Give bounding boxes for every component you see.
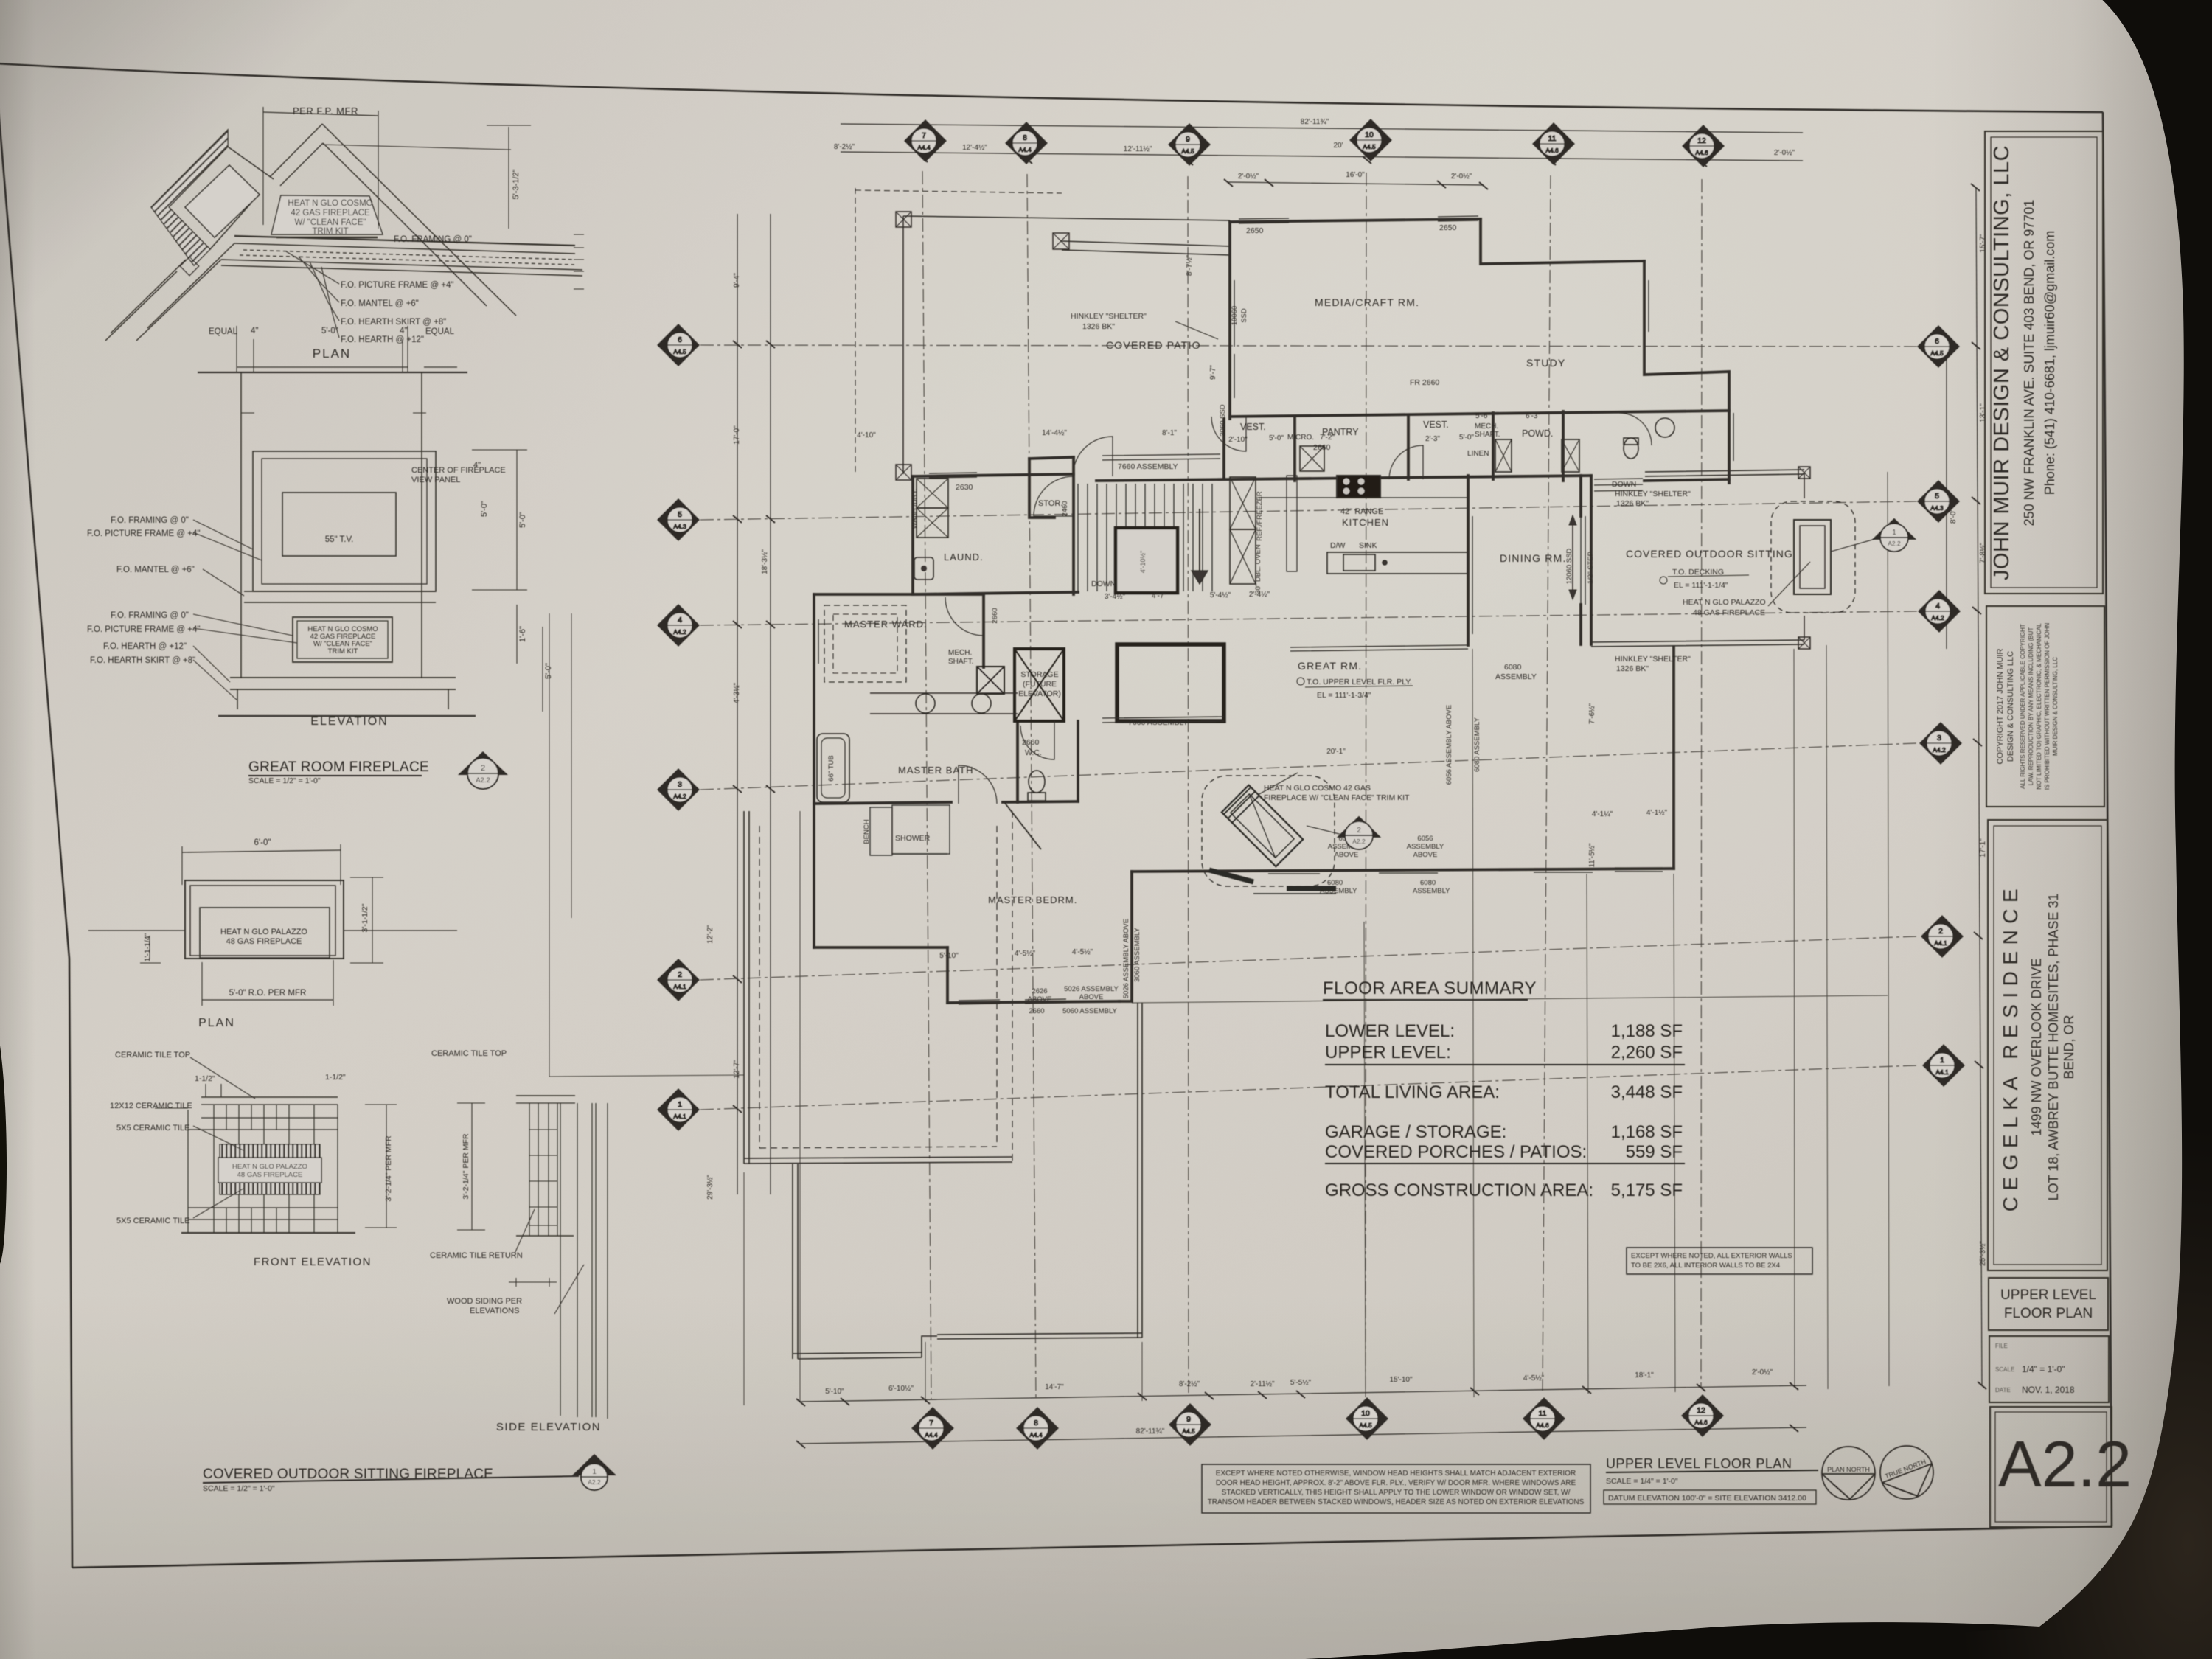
svg-text:48 GAS FIREPLACE: 48 GAS FIREPLACE	[1693, 608, 1765, 617]
svg-text:PLAN: PLAN	[198, 1017, 235, 1029]
svg-text:5'-0": 5'-0"	[480, 501, 489, 517]
svg-text:A4.6: A4.6	[1536, 1422, 1549, 1429]
svg-text:250 NW FRANKLIN AVE. SUITE 403: 250 NW FRANKLIN AVE. SUITE 403 BEND, OR …	[2022, 200, 2037, 526]
svg-text:A4.1: A4.1	[1935, 1068, 1949, 1076]
svg-text:HEAT N GLO COSMO 42 GAS: HEAT N GLO COSMO 42 GAS	[1264, 784, 1371, 793]
svg-text:HEAT N GLO PALAZZO: HEAT N GLO PALAZZO	[1683, 598, 1766, 607]
svg-text:2'-3": 2'-3"	[1425, 435, 1440, 443]
svg-text:A2.2: A2.2	[476, 776, 490, 785]
svg-text:REF./FREEZER: REF./FREEZER	[1256, 491, 1264, 541]
svg-text:13'-1": 13'-1"	[1979, 403, 1987, 422]
svg-text:1-1/2": 1-1/2"	[195, 1074, 215, 1083]
svg-text:6'-3": 6'-3"	[1526, 412, 1540, 420]
svg-text:EQUAL: EQUAL	[209, 327, 238, 336]
svg-text:3: 3	[678, 780, 682, 789]
svg-text:SIDE ELEVATION: SIDE ELEVATION	[496, 1421, 601, 1433]
svg-text:ELEVATOR): ELEVATOR)	[1018, 689, 1061, 698]
svg-text:7660 ASSEMBLY: 7660 ASSEMBLY	[1118, 462, 1178, 471]
svg-text:TRIM KIT: TRIM KIT	[312, 227, 348, 236]
svg-text:COVERED PORCHES / PATIOS:: COVERED PORCHES / PATIOS:	[1325, 1142, 1587, 1162]
svg-text:EXCEPT WHERE NOTED OTHERWISE,: EXCEPT WHERE NOTED OTHERWISE, WINDOW HEA…	[1216, 1470, 1576, 1478]
svg-text:A4.2: A4.2	[673, 793, 686, 800]
svg-text:42" RANGE: 42" RANGE	[1340, 507, 1383, 516]
svg-text:3'-4½": 3'-4½"	[1105, 593, 1126, 601]
svg-text:2,260 SF: 2,260 SF	[1611, 1043, 1683, 1062]
svg-text:SHAFT.: SHAFT.	[1475, 431, 1500, 439]
svg-text:12: 12	[1697, 136, 1706, 145]
svg-text:CERAMIC TILE TOP: CERAMIC TILE TOP	[431, 1049, 507, 1058]
svg-text:6056 ASSEMBLY ABOVE: 6056 ASSEMBLY ABOVE	[1445, 705, 1453, 785]
svg-text:A4.6: A4.6	[1695, 149, 1708, 156]
svg-text:FILE: FILE	[1995, 1343, 2008, 1349]
svg-text:A4.5: A4.5	[1359, 1422, 1372, 1429]
svg-text:29'-3½": 29'-3½"	[706, 1175, 714, 1200]
svg-text:7'-2": 7'-2"	[1320, 434, 1335, 442]
svg-text:5'-0": 5'-0"	[1459, 434, 1474, 442]
svg-text:GROSS CONSTRUCTION AREA:: GROSS CONSTRUCTION AREA:	[1325, 1180, 1593, 1200]
svg-text:3'-2-1/4" PER MFR: 3'-2-1/4" PER MFR	[462, 1133, 470, 1200]
svg-text:66" TUB: 66" TUB	[827, 755, 835, 781]
svg-text:EL = 111'-1-3/4": EL = 111'-1-3/4"	[1317, 691, 1371, 700]
svg-text:IS PROHIBITED WITHOUT WRITTEN: IS PROHIBITED WITHOUT WRITTEN PERMISSION…	[2044, 623, 2051, 790]
svg-text:KITCHEN: KITCHEN	[1342, 517, 1389, 528]
svg-text:SCALE = 1/2" = 1'-0": SCALE = 1/2" = 1'-0"	[248, 776, 321, 785]
svg-text:1: 1	[678, 1100, 682, 1109]
svg-text:A4.4: A4.4	[925, 1431, 938, 1439]
svg-text:1,188 SF: 1,188 SF	[1611, 1021, 1683, 1041]
svg-text:LAW. REPRODUCTION BY ANY MEAN: LAW. REPRODUCTION BY ANY MEANS INCLUDING…	[2028, 627, 2034, 786]
svg-text:9'-7": 9'-7"	[1209, 365, 1217, 380]
svg-text:2660: 2660	[1022, 738, 1040, 747]
svg-text:5'-3-1/2": 5'-3-1/2"	[512, 169, 521, 199]
svg-text:DOOR HEAD HEIGHT, APPROX. 8'-2: DOOR HEAD HEIGHT, APPROX. 8'-2" ABOVE FL…	[1216, 1479, 1576, 1487]
svg-text:MICRO.: MICRO.	[1287, 434, 1314, 442]
svg-text:A2.2: A2.2	[1352, 838, 1366, 845]
svg-text:4'-1½": 4'-1½"	[1646, 809, 1668, 817]
svg-text:11: 11	[1548, 134, 1557, 143]
svg-text:4'-5½": 4'-5½"	[1523, 1374, 1545, 1382]
svg-text:BENCH: BENCH	[863, 819, 871, 844]
svg-text:11: 11	[1539, 1409, 1547, 1418]
svg-text:ALL RIGHTS RESERVED UNDER APPL: ALL RIGHTS RESERVED UNDER APPLICABLE COP…	[2020, 624, 2026, 789]
svg-text:10: 10	[1365, 131, 1374, 139]
svg-text:5X5 CERAMIC TILE: 5X5 CERAMIC TILE	[116, 1124, 189, 1133]
svg-text:14'-7": 14'-7"	[1045, 1383, 1064, 1391]
svg-text:1'-6": 1'-6"	[518, 626, 527, 642]
svg-text:ABOVE: ABOVE	[1335, 851, 1359, 859]
svg-text:17'-0": 17'-0"	[733, 425, 741, 445]
svg-text:A4.2: A4.2	[1931, 614, 1944, 622]
svg-text:HEAT N GLO PALAZZO: HEAT N GLO PALAZZO	[232, 1163, 307, 1171]
svg-text:MEDIA/CRAFT RM.: MEDIA/CRAFT RM.	[1315, 296, 1419, 308]
svg-text:LOWER LEVEL:: LOWER LEVEL:	[1325, 1021, 1455, 1041]
svg-text:F.O. MANTEL @ +6": F.O. MANTEL @ +6"	[341, 299, 419, 308]
svg-text:CEGELKA RESIDENCE: CEGELKA RESIDENCE	[1999, 883, 2022, 1211]
svg-text:4": 4"	[251, 327, 258, 335]
svg-text:82'-11¾": 82'-11¾"	[1136, 1427, 1165, 1436]
svg-text:6: 6	[1935, 337, 1939, 346]
svg-text:3060 SSD: 3060 SSD	[1219, 404, 1227, 436]
svg-text:18'-3½": 18'-3½"	[761, 549, 769, 574]
svg-text:HEAT N GLO COSMO: HEAT N GLO COSMO	[288, 199, 372, 208]
svg-text:5026 ASSEMBLY: 5026 ASSEMBLY	[1064, 985, 1119, 993]
svg-text:FLOOR PLAN: FLOOR PLAN	[2004, 1306, 2093, 1321]
svg-text:5X5 CERAMIC TILE: 5X5 CERAMIC TILE	[116, 1217, 189, 1225]
svg-text:1-1/2": 1-1/2"	[325, 1073, 346, 1082]
svg-text:3'-2-1/4" PER MFR: 3'-2-1/4" PER MFR	[384, 1135, 393, 1202]
svg-text:UPPER LEVEL: UPPER LEVEL	[2000, 1287, 2096, 1303]
svg-text:1499 NW OVERLOOK DRIVE: 1499 NW OVERLOOK DRIVE	[2029, 958, 2044, 1135]
svg-text:4'-3½": 4'-3½"	[733, 682, 741, 703]
svg-text:PLAN: PLAN	[313, 347, 351, 361]
svg-text:ELEVATIONS: ELEVATIONS	[470, 1307, 519, 1315]
svg-text:4": 4"	[400, 327, 407, 335]
svg-text:6'-0": 6'-0"	[254, 838, 271, 847]
svg-text:MASTER WARD.: MASTER WARD.	[844, 619, 928, 630]
svg-text:PLAN NORTH: PLAN NORTH	[1827, 1466, 1870, 1473]
svg-text:D/W: D/W	[1330, 541, 1346, 550]
svg-text:DATE: DATE	[1995, 1387, 2011, 1394]
svg-text:F.O. HEARTH @ +12": F.O. HEARTH @ +12"	[103, 642, 187, 651]
svg-text:4'-1¼": 4'-1¼"	[1592, 810, 1613, 818]
svg-text:A4.4: A4.4	[1018, 146, 1032, 153]
svg-text:6: 6	[678, 335, 682, 344]
svg-text:MASTER BEDRM.: MASTER BEDRM.	[988, 894, 1077, 905]
svg-text:2'-0½": 2'-0½"	[1238, 173, 1259, 181]
svg-text:1: 1	[592, 1468, 597, 1476]
svg-text:4'-10": 4'-10"	[857, 431, 876, 439]
svg-text:BEND, OR: BEND, OR	[2062, 1015, 2076, 1079]
svg-text:8'-2½": 8'-2½"	[1179, 1380, 1200, 1388]
svg-text:9'-4": 9'-4"	[733, 273, 741, 288]
svg-text:F.O. MANTEL @ +6": F.O. MANTEL @ +6"	[116, 566, 195, 574]
svg-text:F.O. FRAMING @ 0": F.O. FRAMING @ 0"	[111, 611, 189, 620]
svg-text:17'-1": 17'-1"	[1979, 838, 1987, 858]
svg-text:EL = 111'-1-1/4": EL = 111'-1-1/4"	[1674, 581, 1728, 590]
svg-text:A4.1: A4.1	[673, 983, 686, 990]
svg-text:A2.2: A2.2	[1888, 540, 1901, 547]
svg-text:3'-1-1/2": 3'-1-1/2"	[361, 903, 369, 932]
svg-text:ABOVE: ABOVE	[1413, 851, 1438, 859]
svg-text:10: 10	[1361, 1409, 1370, 1418]
svg-text:2460: 2460	[1061, 501, 1069, 516]
svg-text:ASSEMBLY: ASSEMBLY	[1320, 887, 1357, 895]
svg-text:1/2" STEP: 1/2" STEP	[1587, 552, 1595, 584]
svg-text:WASH./DRY.: WASH./DRY.	[911, 489, 919, 529]
svg-text:2650: 2650	[1439, 223, 1457, 232]
svg-text:STORAGE: STORAGE	[1020, 670, 1058, 679]
svg-text:1326 BK": 1326 BK"	[1616, 664, 1649, 673]
svg-text:A4.1: A4.1	[1934, 939, 1947, 947]
svg-text:12'-7": 12'-7"	[733, 1060, 741, 1079]
svg-text:ASSEMBLY: ASSEMBLY	[1413, 887, 1450, 895]
svg-text:18'-1": 18'-1"	[1635, 1371, 1654, 1380]
svg-text:5'-10": 5'-10"	[825, 1388, 844, 1396]
svg-text:MECH.: MECH.	[948, 649, 972, 657]
svg-text:12X12 CERAMIC TILE: 12X12 CERAMIC TILE	[110, 1102, 192, 1110]
svg-text:Phone: (541) 410-6681, ljmuir6: Phone: (541) 410-6681, ljmuir60@gmail.co…	[2042, 231, 2057, 495]
svg-text:4'-5½": 4'-5½"	[1072, 948, 1093, 956]
svg-text:F.O. PICTURE FRAME @ +4": F.O. PICTURE FRAME @ +4"	[341, 281, 453, 290]
svg-text:8: 8	[1023, 133, 1027, 142]
svg-text:LINEN: LINEN	[1467, 450, 1489, 458]
svg-text:POWD.: POWD.	[1522, 428, 1553, 439]
svg-text:NOT LIMITED TO) GRAPHIC, ELECT: NOT LIMITED TO) GRAPHIC, ELECTRONIC, & M…	[2036, 623, 2042, 790]
svg-text:COVERED OUTDOOR SITTING: COVERED OUTDOOR SITTING	[1626, 548, 1793, 560]
svg-text:48 GAS FIREPLACE: 48 GAS FIREPLACE	[226, 937, 302, 946]
svg-text:CENTER OF FIREPLACE: CENTER OF FIREPLACE	[411, 466, 506, 475]
svg-text:F.O. PICTURE FRAME @ +4": F.O. PICTURE FRAME @ +4"	[87, 625, 200, 634]
svg-text:12: 12	[1697, 1406, 1705, 1415]
svg-text:2650: 2650	[1246, 226, 1264, 235]
svg-text:4'-5½": 4'-5½"	[1015, 950, 1036, 958]
svg-text:7660 ASSEMBLY: 7660 ASSEMBLY	[1128, 718, 1189, 727]
svg-text:2: 2	[1357, 827, 1361, 835]
svg-text:A2.2: A2.2	[1998, 1427, 2132, 1500]
svg-text:T.O. DECKING: T.O. DECKING	[1672, 568, 1724, 577]
svg-text:10060: 10060	[1231, 306, 1239, 325]
svg-text:7: 7	[929, 1419, 933, 1427]
svg-text:9: 9	[1186, 1415, 1191, 1424]
svg-text:5'-0": 5'-0"	[1269, 434, 1284, 442]
svg-text:20': 20'	[1333, 142, 1343, 150]
svg-text:9: 9	[1186, 135, 1190, 144]
svg-text:SCALE = 1/4" = 1'-0": SCALE = 1/4" = 1'-0"	[1606, 1477, 1678, 1486]
svg-text:DOWN: DOWN	[1612, 480, 1636, 489]
svg-text:STACKED VERTICALLY, THIS HEIGH: STACKED VERTICALLY, THIS HEIGHT SHALL AP…	[1222, 1489, 1571, 1497]
svg-text:4'-10½": 4'-10½"	[1139, 551, 1147, 573]
svg-text:TRIM KIT: TRIM KIT	[328, 647, 358, 655]
svg-text:HINKLEY "SHELTER": HINKLEY "SHELTER"	[1615, 655, 1691, 664]
svg-text:3: 3	[1937, 734, 1941, 742]
svg-text:2660: 2660	[1313, 443, 1331, 452]
svg-text:5'-6": 5'-6"	[1475, 412, 1490, 420]
svg-text:A4.2: A4.2	[1933, 746, 1946, 754]
svg-text:6'-10½": 6'-10½"	[888, 1385, 914, 1393]
svg-text:8'-1": 8'-1"	[1162, 429, 1177, 437]
svg-text:5'-0" R.O. PER MFR: 5'-0" R.O. PER MFR	[229, 989, 307, 998]
svg-text:SCALE: SCALE	[1995, 1366, 2014, 1373]
svg-text:W/ "CLEAN FACE": W/ "CLEAN FACE"	[295, 218, 366, 227]
svg-text:A4.6: A4.6	[1694, 1419, 1708, 1426]
svg-text:12'-2": 12'-2"	[706, 925, 714, 944]
svg-text:12060 SSD: 12060 SSD	[1565, 549, 1573, 585]
svg-text:HINKLEY "SHELTER": HINKLEY "SHELTER"	[1615, 490, 1691, 498]
svg-text:FIREPLACE W/ "CLEAN FACE" TRIM: FIREPLACE W/ "CLEAN FACE" TRIM KIT	[1264, 793, 1410, 802]
svg-text:F.O. FRAMING @ 0": F.O. FRAMING @ 0"	[394, 235, 472, 244]
svg-text:6080: 6080	[1504, 663, 1522, 672]
svg-text:FLOOR AREA SUMMARY: FLOOR AREA SUMMARY	[1323, 978, 1537, 998]
svg-text:TO BE 2X6, ALL INTERIOR WALLS: TO BE 2X6, ALL INTERIOR WALLS TO BE 2X4	[1631, 1262, 1780, 1270]
svg-text:2'-4½": 2'-4½"	[1249, 591, 1270, 599]
svg-text:DESIGN & CONSULTING LLC: DESIGN & CONSULTING LLC	[2006, 651, 2015, 762]
svg-text:ASSEMBLY: ASSEMBLY	[1495, 672, 1537, 681]
svg-text:F.O. FRAMING @ 0": F.O. FRAMING @ 0"	[111, 516, 189, 525]
svg-text:(FUTURE: (FUTURE	[1023, 680, 1057, 689]
svg-text:30" DBL. OVEN: 30" DBL. OVEN	[1254, 544, 1262, 594]
svg-text:COPYRIGHT 2017 JOHN MUIR: COPYRIGHT 2017 JOHN MUIR	[1996, 649, 2005, 765]
svg-text:VEST.: VEST.	[1240, 422, 1266, 432]
svg-text:SHOWER: SHOWER	[895, 834, 931, 843]
svg-text:A4.4: A4.4	[1029, 1431, 1043, 1439]
svg-text:TRANSOM HEADER BETWEEN STACKED: TRANSOM HEADER BETWEEN STACKED WINDOWS, …	[1208, 1498, 1585, 1506]
svg-text:15'-7": 15'-7"	[1979, 234, 1987, 253]
svg-text:4: 4	[678, 616, 682, 625]
svg-text:A4.4: A4.4	[917, 144, 931, 151]
svg-text:MECH.: MECH.	[1475, 422, 1498, 431]
svg-text:6080: 6080	[1327, 879, 1343, 887]
svg-text:2'-11½": 2'-11½"	[1250, 1380, 1275, 1388]
svg-text:MUIR DESIGN & CONSULTING, LLC: MUIR DESIGN & CONSULTING, LLC	[2052, 657, 2059, 756]
svg-text:SINK: SINK	[1359, 541, 1377, 550]
svg-text:CERAMIC TILE RETURN: CERAMIC TILE RETURN	[430, 1251, 523, 1260]
svg-text:ABOVE: ABOVE	[1079, 993, 1104, 1001]
svg-text:1: 1	[1892, 529, 1896, 537]
svg-text:SCALE = 1/2" = 1'-0": SCALE = 1/2" = 1'-0"	[203, 1484, 275, 1493]
svg-text:5: 5	[1935, 492, 1939, 501]
svg-text:42 GAS FIREPLACE: 42 GAS FIREPLACE	[291, 209, 370, 218]
svg-text:6080 ASSEMBLY: 6080 ASSEMBLY	[1473, 717, 1481, 771]
svg-text:SHAFT.: SHAFT.	[948, 658, 973, 666]
svg-text:F.O. HEARTH SKIRT @ +8": F.O. HEARTH SKIRT @ +8"	[341, 318, 446, 327]
svg-text:A4.1: A4.1	[673, 1113, 686, 1120]
svg-text:5'-5½": 5'-5½"	[1290, 1379, 1312, 1387]
svg-text:5'-10": 5'-10"	[939, 952, 959, 960]
svg-text:5'-4½": 5'-4½"	[1210, 591, 1231, 599]
svg-text:F.O. PICTURE FRAME @ +4": F.O. PICTURE FRAME @ +4"	[87, 529, 200, 538]
svg-text:SSD: SSD	[1240, 308, 1248, 323]
svg-text:GREAT ROOM FIREPLACE: GREAT ROOM FIREPLACE	[248, 759, 429, 775]
svg-text:7: 7	[922, 131, 926, 140]
svg-text:48 GAS FIREPLACE: 48 GAS FIREPLACE	[237, 1171, 303, 1179]
svg-text:82'-11¾": 82'-11¾"	[1301, 118, 1329, 126]
svg-text:STOR.: STOR.	[1038, 499, 1062, 508]
svg-text:2'-0½": 2'-0½"	[1774, 149, 1795, 157]
svg-text:NOV. 1, 2018: NOV. 1, 2018	[2022, 1385, 2075, 1395]
svg-text:1,168 SF: 1,168 SF	[1611, 1122, 1683, 1142]
svg-text:5'-0": 5'-0"	[544, 663, 553, 679]
svg-text:JOHN MUIR DESIGN & CONSULTING,: JOHN MUIR DESIGN & CONSULTING, LLC	[1990, 145, 2014, 580]
svg-text:GARAGE / STORAGE:: GARAGE / STORAGE:	[1325, 1122, 1506, 1142]
svg-text:LOT 18, AWBREY BUTTE HOMESITES: LOT 18, AWBREY BUTTE HOMESITES, PHASE 31	[2046, 894, 2061, 1201]
svg-text:F.O. HEARTH SKIRT @ +8": F.O. HEARTH SKIRT @ +8"	[90, 656, 195, 665]
svg-text:A4.5: A4.5	[1363, 143, 1376, 150]
svg-text:2: 2	[1938, 927, 1943, 936]
svg-text:7'-8½": 7'-8½"	[1979, 542, 1987, 563]
svg-text:4'-7": 4'-7"	[1152, 592, 1166, 600]
svg-text:T.O. UPPER LEVEL FLR. PLY.: T.O. UPPER LEVEL FLR. PLY.	[1307, 678, 1412, 686]
svg-text:2630: 2630	[956, 483, 973, 492]
svg-text:UPPER LEVEL:: UPPER LEVEL:	[1325, 1043, 1451, 1062]
svg-text:MASTER BATH: MASTER BATH	[898, 765, 974, 776]
svg-text:15'-10": 15'-10"	[1389, 1376, 1412, 1384]
svg-text:6056: 6056	[1417, 835, 1433, 843]
svg-text:A4.5: A4.5	[1181, 147, 1194, 155]
svg-text:FRONT ELEVATION: FRONT ELEVATION	[254, 1256, 372, 1268]
svg-text:F.O. HEARTH @ +12": F.O. HEARTH @ +12"	[341, 335, 424, 344]
svg-text:3,448 SF: 3,448 SF	[1611, 1082, 1683, 1102]
svg-text:FR 2660: FR 2660	[1410, 378, 1439, 387]
svg-text:TOTAL LIVING AREA:: TOTAL LIVING AREA:	[1325, 1082, 1500, 1102]
svg-text:ELEVATION: ELEVATION	[310, 715, 388, 728]
svg-text:STUDY: STUDY	[1526, 357, 1565, 369]
svg-text:20'-1": 20'-1"	[1326, 748, 1346, 756]
svg-text:WOOD SIDING PER: WOOD SIDING PER	[447, 1297, 522, 1306]
svg-text:5060 ASSEMBLY: 5060 ASSEMBLY	[1062, 1007, 1117, 1015]
svg-text:HEAT N GLO PALAZZO: HEAT N GLO PALAZZO	[220, 928, 307, 936]
svg-text:EXCEPT WHERE NOTED, ALL EXTERI: EXCEPT WHERE NOTED, ALL EXTERIOR WALLS	[1631, 1252, 1792, 1260]
svg-text:8: 8	[1034, 1419, 1038, 1427]
svg-text:2660: 2660	[991, 608, 999, 623]
svg-text:1'-1-1/4": 1'-1-1/4"	[143, 933, 152, 961]
svg-text:1/4" = 1'-0": 1/4" = 1'-0"	[2022, 1364, 2065, 1374]
svg-text:559 SF: 559 SF	[1626, 1142, 1683, 1162]
svg-text:2'-10": 2'-10"	[1228, 436, 1248, 444]
svg-text:A4.5: A4.5	[1182, 1427, 1195, 1435]
svg-text:A4.5: A4.5	[1930, 349, 1944, 357]
svg-text:6080: 6080	[1420, 879, 1436, 887]
svg-text:14'-4½": 14'-4½"	[1042, 429, 1067, 437]
svg-text:PER F.P. MFR: PER F.P. MFR	[293, 105, 358, 116]
svg-text:VIEW PANEL: VIEW PANEL	[411, 476, 460, 484]
svg-text:VEST.: VEST.	[1423, 420, 1449, 430]
svg-text:DOWN: DOWN	[1091, 580, 1116, 588]
svg-text:2660: 2660	[1029, 1007, 1044, 1015]
svg-text:COVERED PATIO: COVERED PATIO	[1106, 339, 1201, 351]
svg-text:W.C.: W.C.	[1025, 748, 1042, 757]
svg-text:2: 2	[481, 764, 485, 773]
svg-text:LAUND.: LAUND.	[944, 552, 984, 563]
svg-text:55" T.V.: 55" T.V.	[325, 535, 354, 544]
svg-text:HINKLEY "SHELTER": HINKLEY "SHELTER"	[1071, 312, 1147, 321]
svg-text:A4.3: A4.3	[673, 523, 686, 530]
svg-text:DATUM ELEVATION 100'-0" = SITE: DATUM ELEVATION 100'-0" = SITE ELEVATION…	[1608, 1494, 1806, 1503]
svg-text:2'-0½": 2'-0½"	[1451, 173, 1472, 181]
svg-text:1: 1	[1940, 1056, 1944, 1065]
svg-text:A4.3: A4.3	[1930, 504, 1944, 512]
svg-text:1326 BK": 1326 BK"	[1082, 322, 1115, 331]
svg-text:ABOVE: ABOVE	[1028, 995, 1052, 1004]
svg-text:5: 5	[678, 510, 682, 519]
svg-text:2'-0½": 2'-0½"	[1752, 1368, 1773, 1377]
svg-text:3060 ASSEMBLY: 3060 ASSEMBLY	[1133, 927, 1141, 981]
svg-text:A4.2: A4.2	[673, 628, 686, 636]
svg-text:4: 4	[1935, 602, 1940, 611]
svg-text:25'-3½": 25'-3½"	[1979, 1241, 1987, 1266]
svg-text:7'-6½": 7'-6½"	[1588, 703, 1596, 724]
svg-text:11'-5½": 11'-5½"	[1588, 843, 1596, 868]
svg-text:8'-2½": 8'-2½"	[834, 143, 855, 151]
svg-text:A4.5: A4.5	[673, 348, 686, 355]
svg-text:12'-4½": 12'-4½"	[962, 144, 987, 152]
svg-text:2: 2	[678, 970, 682, 979]
svg-text:A2.2: A2.2	[588, 1478, 601, 1486]
svg-text:EQUAL: EQUAL	[425, 327, 455, 336]
svg-text:5'-0": 5'-0"	[321, 327, 338, 335]
svg-text:CERAMIC TILE TOP: CERAMIC TILE TOP	[115, 1051, 190, 1060]
svg-text:12'-11½": 12'-11½"	[1124, 145, 1152, 153]
svg-text:5,175 SF: 5,175 SF	[1611, 1180, 1683, 1200]
svg-text:GREAT RM.: GREAT RM.	[1298, 660, 1362, 672]
svg-text:ASSEMBLY: ASSEMBLY	[1407, 843, 1444, 851]
svg-text:1326 BK": 1326 BK"	[1616, 499, 1649, 508]
svg-text:A4.6: A4.6	[1545, 147, 1559, 154]
svg-text:DINING RM.: DINING RM.	[1500, 552, 1567, 564]
svg-text:5026 ASSEMBLY ABOVE: 5026 ASSEMBLY ABOVE	[1122, 919, 1130, 998]
svg-text:16'-0": 16'-0"	[1346, 171, 1365, 179]
svg-text:8'-0": 8'-0"	[1950, 509, 1958, 524]
svg-text:8'-7½": 8'-7½"	[1186, 254, 1194, 276]
